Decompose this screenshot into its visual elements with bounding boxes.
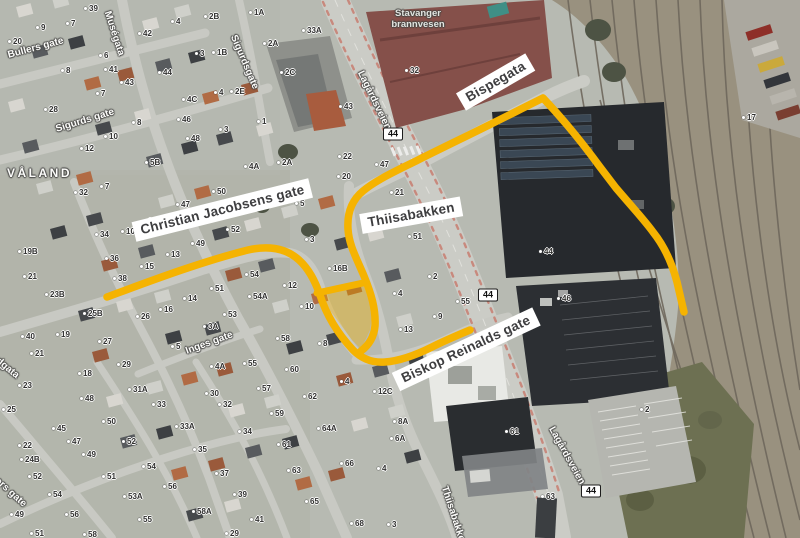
poi-line-1: Stavanger [376,9,460,20]
poi-label-fire-station: Stavanger brannvesen [376,9,460,30]
satellite-map-canvas[interactable]: Bullers gateMuségataSigurdsgateSigurds g… [0,0,800,538]
poi-line-2: brannvesen [376,20,460,31]
map-imagery [0,0,800,538]
